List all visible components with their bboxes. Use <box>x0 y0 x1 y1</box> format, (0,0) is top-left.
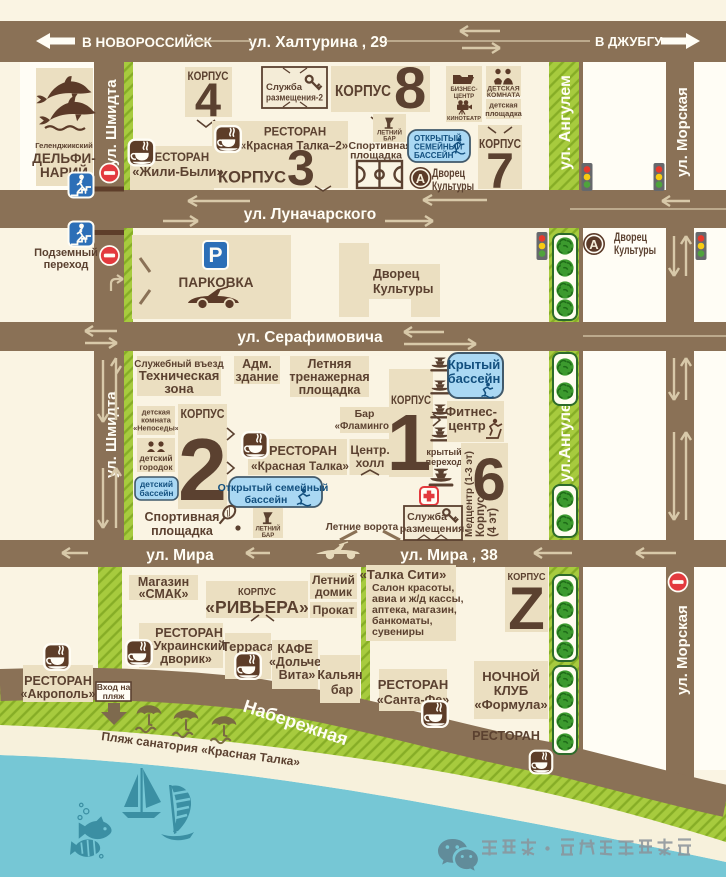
svg-text:«Талка Сити»: «Талка Сити» <box>360 567 447 582</box>
svg-text:Фитнес-: Фитнес- <box>445 404 497 419</box>
svg-text:БИЗНЕС-: БИЗНЕС- <box>450 87 477 93</box>
svg-text:БАР: БАР <box>262 533 274 539</box>
svg-text:Культуры: Культуры <box>432 179 474 193</box>
svg-text:Культуры: Культуры <box>614 243 656 257</box>
svg-text:«Акрополь»: «Акрополь» <box>21 687 96 701</box>
svg-text:ул. Шмидта: ул. Шмидта <box>103 391 120 478</box>
svg-text:Центр.: Центр. <box>350 443 389 457</box>
svg-text:Дворец: Дворец <box>373 267 420 281</box>
svg-text:БАССЕЙН: БАССЕЙН <box>414 151 454 160</box>
svg-text:зона: зона <box>164 381 194 396</box>
svg-text:8: 8 <box>394 56 426 121</box>
svg-text:Адм.: Адм. <box>242 357 272 371</box>
svg-text:6: 6 <box>472 446 505 513</box>
svg-text:Геленджикский: Геленджикский <box>35 141 93 150</box>
svg-text:дворик»: дворик» <box>160 652 212 666</box>
svg-text:ул. Халтурина , 29: ул. Халтурина , 29 <box>248 34 388 51</box>
svg-text:городок: городок <box>139 462 173 472</box>
svg-text:тренажерная: тренажерная <box>289 370 369 384</box>
svg-text:3: 3 <box>287 140 315 196</box>
svg-text:центр: центр <box>448 418 485 433</box>
svg-text:Летние ворота: Летние ворота <box>326 522 399 533</box>
svg-text:«СМАК»: «СМАК» <box>139 587 189 601</box>
svg-text:площадка: площадка <box>350 150 402 162</box>
svg-text:Z: Z <box>508 575 545 642</box>
svg-text:2: 2 <box>178 420 227 519</box>
svg-text:ул. Мира: ул. Мира <box>146 547 214 564</box>
svg-text:РЕСТОРАН: РЕСТОРАН <box>155 626 223 640</box>
svg-text:здание: здание <box>235 370 278 384</box>
svg-text:Кальян: Кальян <box>317 668 362 682</box>
svg-text:ул. Серафимовича: ул. Серафимовича <box>237 329 383 346</box>
svg-text:Спортивная: Спортивная <box>145 510 220 524</box>
svg-text:ДЕЛЬФИ-: ДЕЛЬФИ- <box>32 151 96 166</box>
svg-text:Открытый семейный: Открытый семейный <box>218 482 329 494</box>
svg-text:Летняя: Летняя <box>308 357 352 371</box>
svg-text:холл: холл <box>356 456 385 470</box>
svg-text:Крытый: Крытый <box>448 357 500 372</box>
svg-text:КЛУБ: КЛУБ <box>494 683 529 698</box>
svg-text:НОЧНОЙ: НОЧНОЙ <box>482 669 539 684</box>
svg-text:«Красная Талка»: «Красная Талка» <box>251 459 349 473</box>
svg-text:ЛЕТНИЙ: ЛЕТНИЙ <box>256 525 281 533</box>
svg-text:РЕСТОРАН: РЕСТОРАН <box>147 152 209 164</box>
svg-text:Прокат: Прокат <box>313 603 355 617</box>
svg-text:бассейн: бассейн <box>139 488 173 498</box>
svg-text:ул. Морская: ул. Морская <box>674 87 691 177</box>
svg-text:Терраса: Терраса <box>222 639 275 654</box>
svg-text:сувениры: сувениры <box>372 626 424 638</box>
svg-text:ул. Луначарского: ул. Луначарского <box>244 206 376 223</box>
svg-text:пляж: пляж <box>103 691 126 701</box>
svg-text:площадка: площадка <box>485 109 522 118</box>
svg-text:ул. Шмидта: ул. Шмидта <box>103 79 120 166</box>
svg-text:А: А <box>416 171 426 186</box>
svg-text:Служба: Служба <box>266 82 303 93</box>
svg-text:«Непоседы»: «Непоседы» <box>133 424 179 433</box>
svg-text:РЕСТОРАН: РЕСТОРАН <box>264 127 326 139</box>
svg-text:Подземный: Подземный <box>34 247 98 259</box>
svg-text:бассейн: бассейн <box>245 494 288 506</box>
svg-text:размещения-2: размещения-2 <box>266 93 323 104</box>
svg-text:КАФЕ: КАФЕ <box>277 642 312 656</box>
svg-text:Вита»: Вита» <box>279 668 316 682</box>
svg-text:переход: переход <box>426 457 463 467</box>
svg-text:В НОВОРОССИЙСК: В НОВОРОССИЙСК <box>82 35 213 50</box>
svg-text:площадка: площадка <box>299 383 362 397</box>
svg-text:4: 4 <box>195 73 221 126</box>
svg-text:размещения: размещения <box>400 523 465 535</box>
svg-text:В ДЖУБГУ: В ДЖУБГУ <box>595 34 663 49</box>
svg-text:ЛЕТНИЙ: ЛЕТНИЙ <box>377 129 402 137</box>
svg-text:площадка: площадка <box>151 524 214 538</box>
svg-text:ул. Мира , 38: ул. Мира , 38 <box>400 547 498 564</box>
svg-text:домик: домик <box>315 585 353 599</box>
svg-text:КОРПУС: КОРПУС <box>218 168 286 187</box>
svg-text:КОМНАТА: КОМНАТА <box>487 92 520 99</box>
svg-text:Дворец: Дворец <box>614 230 647 244</box>
svg-text:«Украинский: «Украинский <box>147 639 226 653</box>
svg-text:КОРПУС: КОРПУС <box>181 407 225 421</box>
svg-text:бассейн: бассейн <box>448 371 501 386</box>
svg-text:РЕСТОРАН: РЕСТОРАН <box>269 444 337 458</box>
svg-text:РЕСТОРАН: РЕСТОРАН <box>24 674 92 688</box>
svg-text:1: 1 <box>387 398 432 487</box>
svg-text:переход: переход <box>44 259 89 271</box>
svg-text:ПАРКОВКА: ПАРКОВКА <box>179 275 254 290</box>
svg-text:РЕСТОРАН: РЕСТОРАН <box>378 677 448 692</box>
svg-text:«РИВЬЕРА»: «РИВЬЕРА» <box>205 597 308 617</box>
svg-text:КИНОТЕАТР: КИНОТЕАТР <box>447 116 481 122</box>
svg-text:P: P <box>208 244 222 267</box>
svg-text:КОРПУС: КОРПУС <box>335 83 391 100</box>
svg-text:«Дольче: «Дольче <box>269 655 321 669</box>
svg-text:7: 7 <box>486 143 514 199</box>
svg-text:РЕСТОРАН: РЕСТОРАН <box>472 729 540 743</box>
svg-text:«Формула»: «Формула» <box>474 697 547 712</box>
svg-text:Бар: Бар <box>355 408 375 420</box>
svg-text:Культуры: Культуры <box>373 282 433 296</box>
svg-text:крытый: крытый <box>426 447 461 457</box>
svg-text:Дворец: Дворец <box>432 166 465 180</box>
svg-text:бар: бар <box>331 683 354 697</box>
svg-text:А: А <box>589 237 599 252</box>
svg-text:ул. Морская: ул. Морская <box>674 605 691 695</box>
svg-text:Служба: Служба <box>407 511 447 523</box>
svg-text:ул. Ангулем: ул. Ангулем <box>557 75 574 170</box>
svg-text:ЦЕНТР: ЦЕНТР <box>454 94 474 100</box>
